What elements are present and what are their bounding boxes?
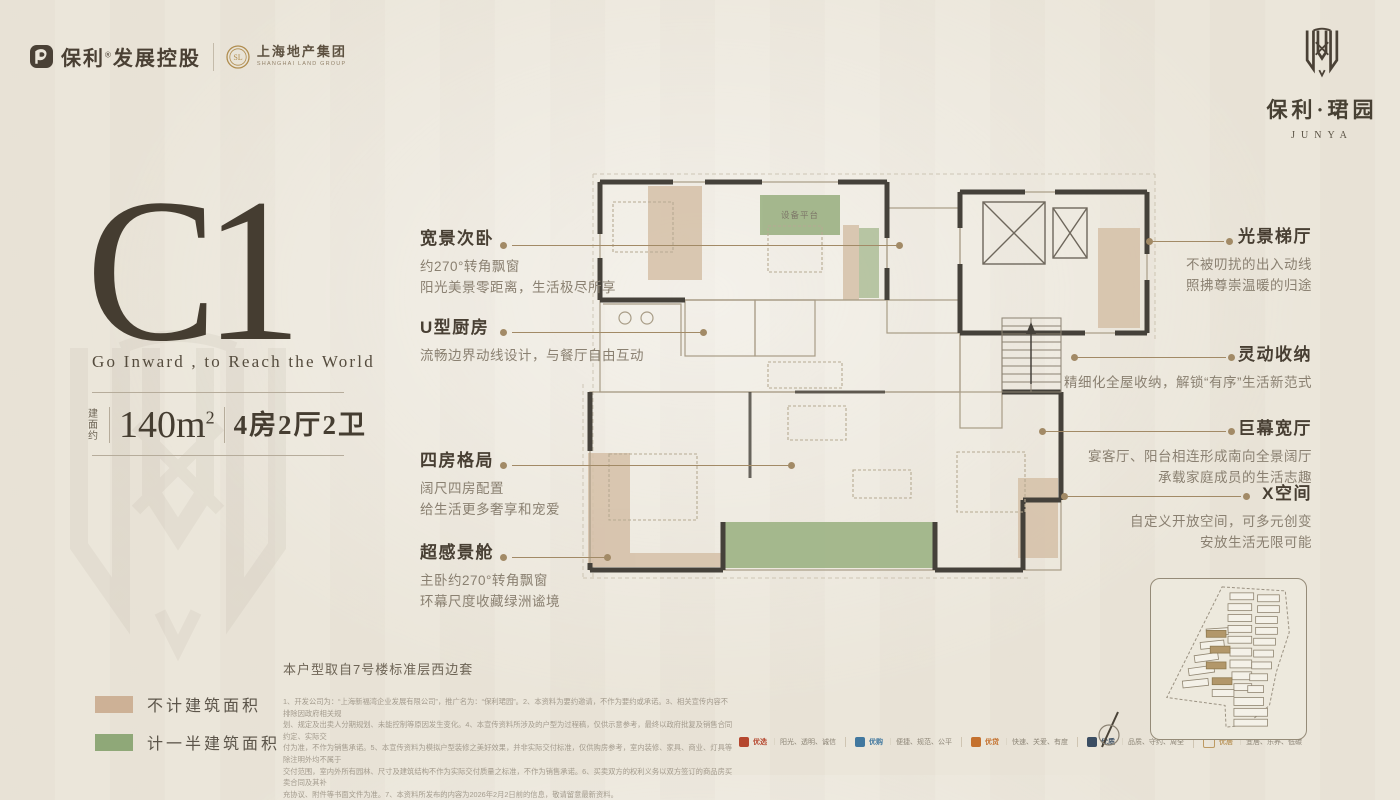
callout-lift-lobby: 光景梯厅 不被叨扰的出入动线 照拂尊崇温暖的归途 <box>1012 228 1312 296</box>
disclaimer-line: 充协议、附件等书面文件为准。7、本资料所发布的内容为2026年2月2日前的信息，… <box>283 789 735 800</box>
callout-desc-line: 宴客厅、阳台相连形成南向全景阔厅 <box>1012 446 1312 467</box>
divider-rule-top <box>92 392 344 393</box>
callout-desc-line: 阳光美景零距离，生活极尽所享 <box>420 277 616 298</box>
registered-mark: ® <box>105 50 113 59</box>
area-number: 140m <box>119 404 206 446</box>
site-plan-map <box>1150 578 1307 740</box>
badge-name: 优贷 <box>985 737 999 747</box>
platform-label: 设备平台 <box>781 210 819 220</box>
callout-desc: 宴客厅、阳台相连形成南向全景阔厅 承载家庭成员的生活志趣 <box>1012 446 1312 488</box>
legal-disclaimer: 1、开发公司为：“上海新福湾企业发展有限公司”，推广名为：“保利珺园”。2、本资… <box>283 696 735 800</box>
callout-desc: 自定义开放空间，可多元创变 安放生活无限可能 <box>1012 511 1312 553</box>
callout-desc: 约270°转角飘窗 阳光美景零距离，生活极尽所享 <box>420 256 616 298</box>
spec-divider <box>109 407 110 443</box>
callout-desc-line: 照拂尊崇温暖的归途 <box>1012 275 1312 296</box>
poster-canvas: 保利®发展控股 SL 上海地产集团 SHANGHAI LAND GROUP 保利… <box>0 0 1400 775</box>
callout-desc-line: 自定义开放空间，可多元创变 <box>1012 511 1312 532</box>
area-value: 140m2 <box>119 406 215 444</box>
badge-separator: ｜ <box>771 737 778 747</box>
badge-name: 优购 <box>869 737 883 747</box>
callout-desc-line: 不被叨扰的出入动线 <box>1012 254 1312 275</box>
disclaimer-line: 付为准，不作为销售承诺。5、本宣传资料为模拟户型装修之美好效果，并非实际交付标准… <box>283 742 735 765</box>
callout-desc: 精细化全屋收纳，解锁“有序”生活新范式 <box>1012 372 1312 393</box>
callout-master-suite: 超感景舱 主卧约270°转角飘窗 环幕尺度收藏绿洲谧境 <box>420 544 560 612</box>
callout-desc-line: 约270°转角飘窗 <box>420 256 616 277</box>
poly-logo-icon <box>30 45 53 68</box>
callout-title: 宽景次卧 <box>420 230 616 247</box>
junya-emblem-icon <box>1299 26 1345 80</box>
callout-title: U型厨房 <box>420 319 644 336</box>
divider-rule-bottom <box>92 455 344 456</box>
badge-icon <box>971 737 981 747</box>
callout-desc-line: 环幕尺度收藏绿洲谧境 <box>420 591 560 612</box>
partner-name-cn: 上海地产集团 <box>257 45 347 58</box>
legend-swatch-green <box>95 734 133 751</box>
site-plan-drawing <box>1151 579 1306 739</box>
callout-title: X空间 <box>1012 485 1312 502</box>
room-count: 4房2厅2卫 <box>234 412 368 439</box>
spec-divider <box>224 407 225 443</box>
callout-four-bedrooms: 四房格局 阔尺四房配置 给生活更多奢享和宠爱 <box>420 452 560 520</box>
legend-item-not-counted: 不计建筑面积 <box>95 692 261 716</box>
project-name-cn: 保利·珺园 <box>1252 94 1392 124</box>
callout-living-room: 巨幕宽厅 宴客厅、阳台相连形成南向全景阔厅 承载家庭成员的生活志趣 <box>1012 420 1312 488</box>
legend-item-half-counted: 计一半建筑面积 <box>95 730 280 754</box>
badge-separator: ｜ <box>1003 737 1010 747</box>
callout-desc: 流畅边界动线设计，与餐厅自由互动 <box>420 345 644 366</box>
area-prefix-label: 建面约 <box>88 409 100 442</box>
callout-desc-line: 流畅边界动线设计，与餐厅自由互动 <box>420 345 644 366</box>
poly-brand-text: 保利®发展控股 <box>61 42 201 71</box>
badge-desc: 快速、关爱、有度 <box>1012 737 1068 747</box>
callout-desc: 阔尺四房配置 给生活更多奢享和宠爱 <box>420 478 560 520</box>
callout-title: 灵动收纳 <box>1012 346 1312 363</box>
callout-desc: 不被叨扰的出入动线 照拂尊崇温暖的归途 <box>1012 254 1312 296</box>
poly-suffix: 发展控股 <box>113 48 201 70</box>
poly-name: 保利 <box>61 48 105 70</box>
leader-dot <box>604 554 611 561</box>
badge-separator: ｜ <box>887 737 894 747</box>
north-compass-icon <box>1092 710 1126 750</box>
leader-dot <box>788 462 795 469</box>
badge-icon <box>855 737 865 747</box>
callout-desc-line: 阔尺四房配置 <box>420 478 560 499</box>
callout-desc-line: 精细化全屋收纳，解锁“有序”生活新范式 <box>1012 372 1312 393</box>
partner-name-en: SHANGHAI LAND GROUP <box>257 62 347 68</box>
unit-spec: 建面约 140m2 4房2厅2卫 <box>88 402 367 448</box>
project-brand: 保利·珺园 JUNYA <box>1252 26 1392 141</box>
callout-desc-line: 安放生活无限可能 <box>1012 532 1312 553</box>
badge-icon <box>739 737 749 747</box>
badge-youxuan: 优选｜阳光、透明、诚信 <box>730 737 845 747</box>
badge-desc: 阳光、透明、诚信 <box>780 737 836 747</box>
callout-title: 超感景舱 <box>420 544 560 561</box>
badge-youdai: 优贷｜快速、关爱、有度 <box>961 737 1077 747</box>
shanghai-land-logo-icon: SL <box>226 45 250 69</box>
badge-yougou: 优购｜便捷、规范、公平 <box>845 737 961 747</box>
callout-kitchen: U型厨房 流畅边界动线设计，与餐厅自由互动 <box>420 319 644 366</box>
disclaimer-line: 1、开发公司为：“上海新福湾企业发展有限公司”，推广名为：“保利珺园”。2、本资… <box>283 696 735 719</box>
callout-title: 巨幕宽厅 <box>1012 420 1312 437</box>
header-divider <box>213 43 214 71</box>
partner-brand: 上海地产集团 SHANGHAI LAND GROUP <box>257 45 347 68</box>
callout-desc: 主卧约270°转角飘窗 环幕尺度收藏绿洲谧境 <box>420 570 560 612</box>
leader-dot <box>700 329 707 336</box>
callout-desc-line: 给生活更多奢享和宠爱 <box>420 499 560 520</box>
callout-title: 光景梯厅 <box>1012 228 1312 245</box>
project-name-en: JUNYA <box>1252 130 1392 141</box>
tagline: Go Inward , to Reach the World <box>92 352 375 372</box>
callout-secondary-bedroom: 宽景次卧 约270°转角飘窗 阳光美景零距离，生活极尽所享 <box>420 230 616 298</box>
callout-desc-line: 主卧约270°转角飘窗 <box>420 570 560 591</box>
disclaimer-line: 划、规定及出卖人分期规划、未能控制等原因发生变化。4、本宣传资料所涉及的户型为过… <box>283 719 735 742</box>
badge-name: 优选 <box>753 737 767 747</box>
unit-source-note: 本户型取自7号楼标准层西边套 <box>283 659 473 678</box>
legend-label: 计一半建筑面积 <box>147 730 280 754</box>
callout-storage: 灵动收纳 精细化全屋收纳，解锁“有序”生活新范式 <box>1012 346 1312 393</box>
leader-dot <box>896 242 903 249</box>
badge-desc: 便捷、规范、公平 <box>896 737 952 747</box>
legend-label: 不计建筑面积 <box>147 692 261 716</box>
header-brand-left: 保利®发展控股 SL 上海地产集团 SHANGHAI LAND GROUP <box>30 42 347 71</box>
shanghai-land-monogram: SL <box>233 53 242 62</box>
unit-code: C1 <box>86 168 289 373</box>
disclaimer-line: 交付范围，室内外所有园林、尺寸及建筑结构不作为实际交付质量之标准，不作为销售承诺… <box>283 766 735 789</box>
legend-swatch-tan <box>95 696 133 713</box>
callout-title: 四房格局 <box>420 452 560 469</box>
callout-x-space: X空间 自定义开放空间，可多元创变 安放生活无限可能 <box>1012 485 1312 553</box>
area-superscript: 2 <box>206 407 215 427</box>
